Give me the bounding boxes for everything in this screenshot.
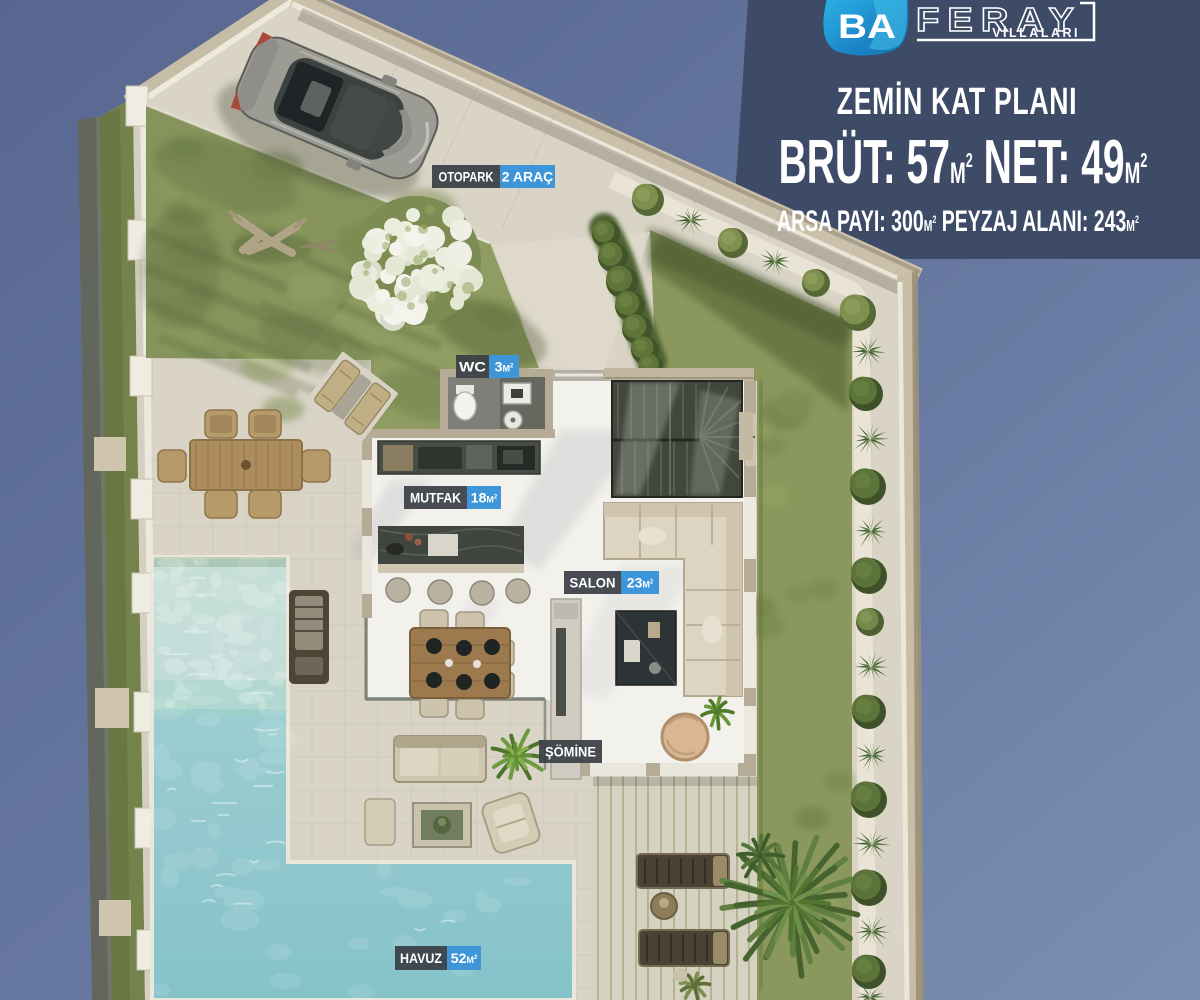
svg-text:VİLLALARI: VİLLALARI bbox=[992, 25, 1080, 40]
svg-text:OTOPARK: OTOPARK bbox=[439, 169, 494, 185]
svg-text:ŞÖMİNE: ŞÖMİNE bbox=[545, 744, 596, 760]
svg-text:MUTFAK: MUTFAK bbox=[410, 490, 461, 506]
svg-text:BA: BA bbox=[838, 8, 896, 46]
svg-text:HAVUZ: HAVUZ bbox=[400, 950, 442, 966]
svg-text:ZEMİN KAT PLANI: ZEMİN KAT PLANI bbox=[837, 79, 1077, 122]
svg-text:2 ARAÇ: 2 ARAÇ bbox=[502, 169, 554, 185]
svg-text:ARSA PAYI: 300M2 PEYZAJ ALANI:: ARSA PAYI: 300M2 PEYZAJ ALANI: 243M2 bbox=[777, 205, 1139, 238]
svg-text:SALON: SALON bbox=[570, 575, 616, 591]
svg-text:WC: WC bbox=[459, 359, 486, 375]
